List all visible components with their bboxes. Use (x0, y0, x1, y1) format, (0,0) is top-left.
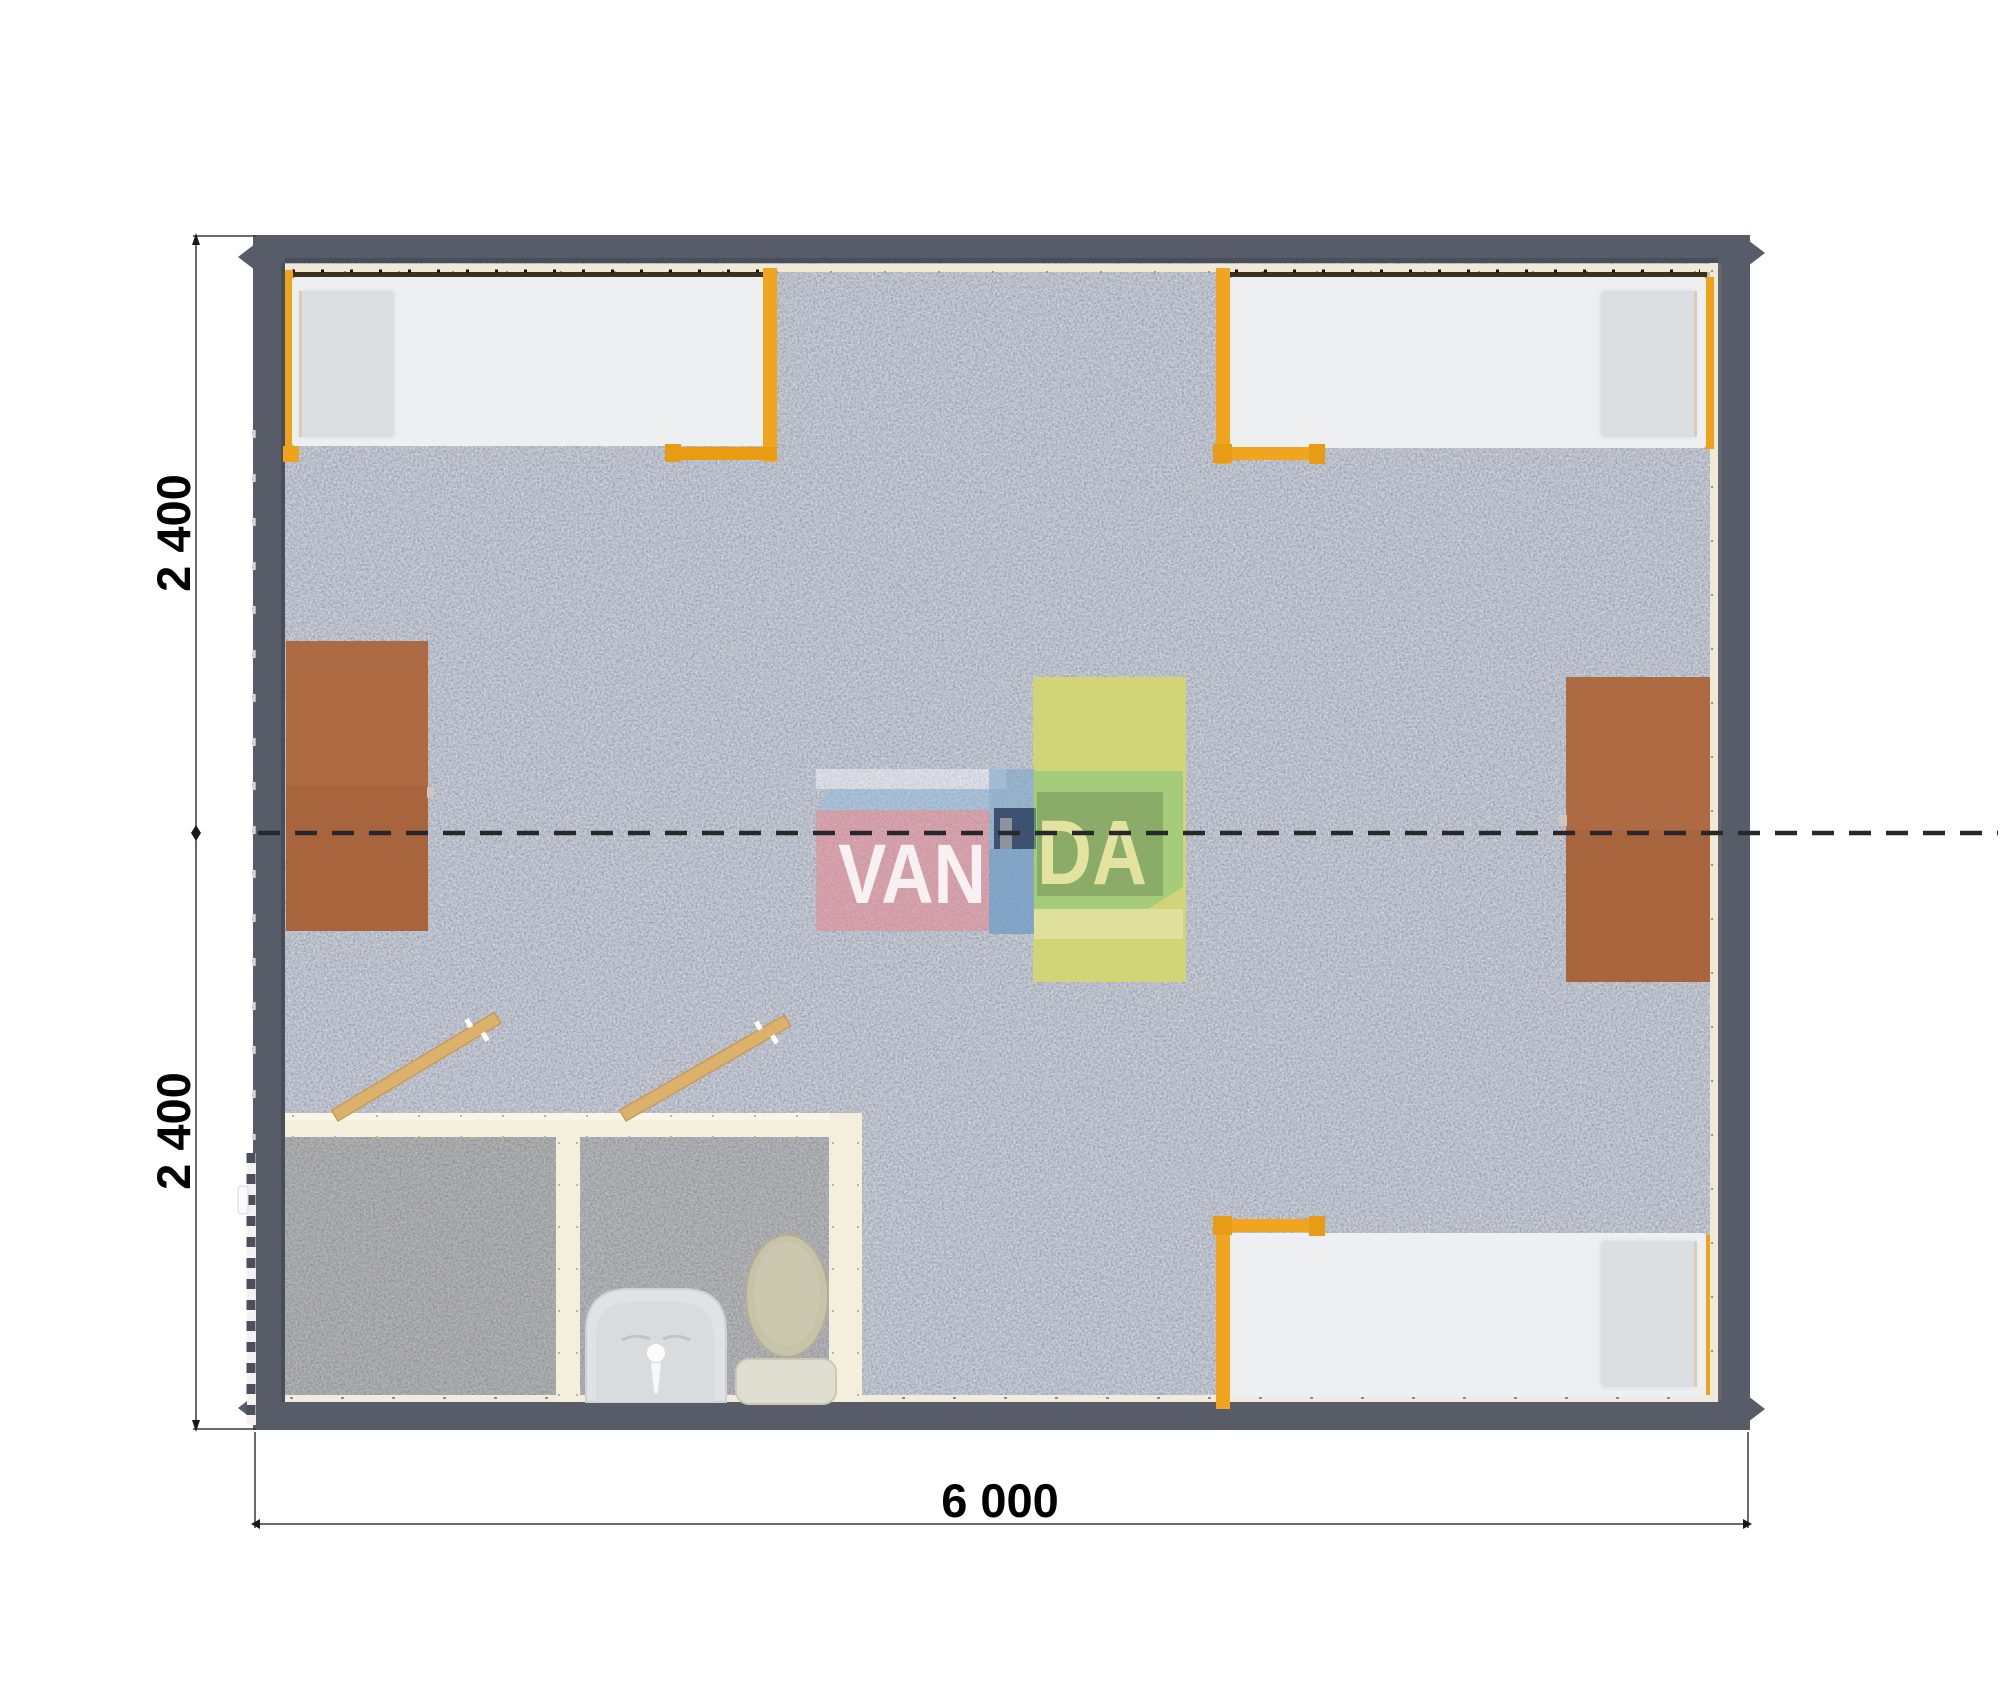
svg-text:2 400: 2 400 (147, 474, 200, 592)
svg-text:6 000: 6 000 (941, 1474, 1059, 1527)
svg-text:DA: DA (1037, 802, 1147, 904)
svg-text:2 400: 2 400 (147, 1072, 200, 1190)
svg-text:VAN: VAN (838, 827, 986, 921)
